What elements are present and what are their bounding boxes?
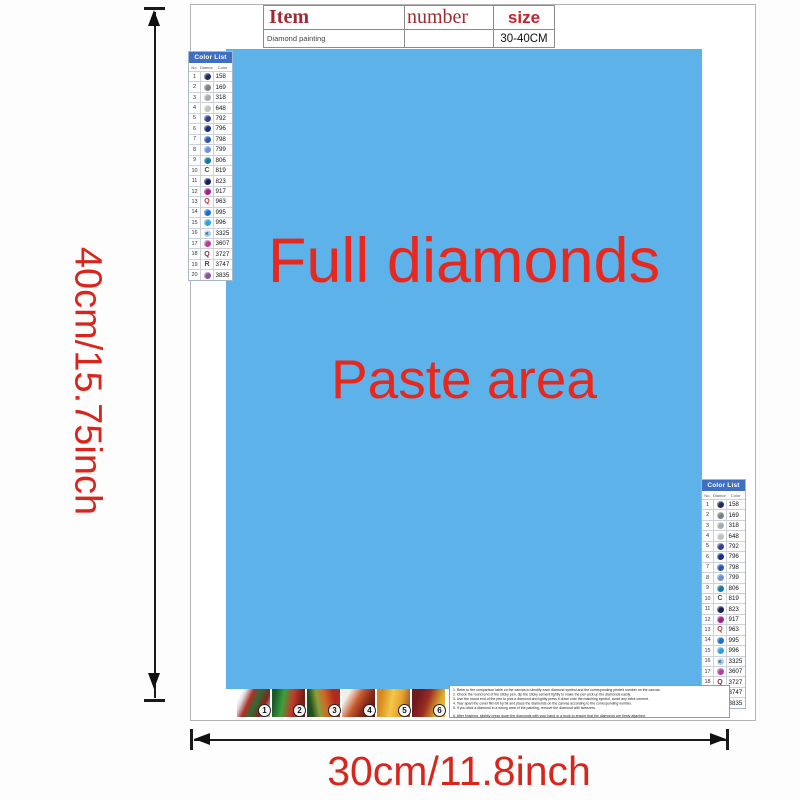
color-list-left: Color List No. Diamond Color 11582169331… xyxy=(188,51,233,281)
color-list-row: 6796 xyxy=(702,551,745,561)
item-value: Diamond painting xyxy=(264,30,405,48)
step-thumbnail: 1 xyxy=(237,689,270,717)
color-list-row: 18Q3727 xyxy=(189,248,232,258)
color-row-number: 15 xyxy=(702,648,713,654)
color-row-number: 16 xyxy=(189,230,200,236)
color-code: 158 xyxy=(213,72,232,81)
color-row-number: 4 xyxy=(189,105,200,111)
color-code: 169 xyxy=(726,510,745,519)
color-symbol xyxy=(713,646,726,655)
color-dot-icon xyxy=(717,501,724,508)
color-list-row: 14995 xyxy=(702,635,745,645)
color-list-row: 7798 xyxy=(702,562,745,572)
color-code: 792 xyxy=(213,114,232,123)
color-dot-icon xyxy=(717,533,724,540)
color-code: 3835 xyxy=(213,270,232,279)
color-symbol xyxy=(713,573,726,582)
color-list-row: 173607 xyxy=(702,666,745,676)
color-row-number: 16 xyxy=(702,658,713,664)
arrow-right-icon xyxy=(710,733,726,745)
color-code: 917 xyxy=(213,187,232,196)
color-letter-symbol: Q xyxy=(204,198,209,205)
color-row-number: 5 xyxy=(189,115,200,121)
color-list-row: 5792 xyxy=(702,541,745,551)
color-code: 799 xyxy=(213,145,232,154)
color-code: 819 xyxy=(213,166,232,175)
color-row-number: 1 xyxy=(189,74,200,80)
color-row-number: 9 xyxy=(189,157,200,163)
color-symbol: K xyxy=(713,657,726,666)
color-dot-icon xyxy=(717,522,724,529)
item-header: Item xyxy=(264,6,405,30)
color-list-row: 16K3325 xyxy=(189,228,232,238)
color-code: 318 xyxy=(213,93,232,102)
col-color: Color xyxy=(726,493,745,498)
color-row-number: 3 xyxy=(189,95,200,101)
step-thumbnails: 123456 xyxy=(237,689,445,717)
color-list-row: 10C819 xyxy=(189,165,232,175)
color-list-row: 12917 xyxy=(189,186,232,196)
color-dot-icon xyxy=(204,178,211,185)
color-dot-icon xyxy=(717,616,724,623)
color-list-row: 13Q963 xyxy=(702,624,745,634)
color-dot-icon xyxy=(204,105,211,112)
color-code: 3325 xyxy=(726,657,745,666)
color-symbol: Q xyxy=(200,197,213,206)
color-symbol xyxy=(713,531,726,540)
width-dimension-label: 30cm/11.8inch xyxy=(259,748,659,795)
color-row-number: 7 xyxy=(702,564,713,570)
color-code: 792 xyxy=(726,542,745,551)
height-arrow-line xyxy=(154,12,156,698)
color-list-row: 10C819 xyxy=(702,593,745,603)
item-info-table: Item number size Diamond painting 30-40C… xyxy=(263,5,555,48)
color-list-row: 11823 xyxy=(189,175,232,185)
color-list-row: 15996 xyxy=(189,217,232,227)
color-code: 648 xyxy=(213,103,232,112)
color-list-row: 6796 xyxy=(189,123,232,133)
color-code: 796 xyxy=(213,124,232,133)
color-dot-icon xyxy=(204,219,211,226)
color-dot-icon xyxy=(717,647,724,654)
color-dot-icon xyxy=(204,94,211,101)
color-symbol: C xyxy=(200,166,213,175)
color-letter-symbol: Q xyxy=(204,251,209,258)
color-dot-icon xyxy=(717,574,724,581)
color-list-row: 4648 xyxy=(702,530,745,540)
color-list-title: Color List xyxy=(189,52,232,63)
color-symbol xyxy=(713,615,726,624)
arrow-down-icon xyxy=(148,673,160,689)
color-symbol xyxy=(200,218,213,227)
color-code: 996 xyxy=(726,646,745,655)
size-value: 30-40CM xyxy=(494,30,555,48)
step-number-badge: 1 xyxy=(258,704,271,717)
color-symbol xyxy=(200,176,213,185)
col-no: No. xyxy=(702,493,713,498)
color-symbol xyxy=(200,208,213,217)
color-row-number: 13 xyxy=(702,627,713,633)
color-symbol xyxy=(713,510,726,519)
color-list-row: 203835 xyxy=(189,269,232,279)
step-thumbnail: 4 xyxy=(342,689,375,717)
color-code: 158 xyxy=(726,500,745,509)
color-symbol xyxy=(200,145,213,154)
color-code: 799 xyxy=(726,573,745,582)
color-list-row: 1158 xyxy=(702,499,745,509)
step-thumbnail: 6 xyxy=(412,689,445,717)
instructions-text: 1. Refer to the comparison table on the … xyxy=(453,688,726,718)
color-dot-icon xyxy=(717,543,724,550)
step-thumbnail: 2 xyxy=(272,689,305,717)
item-table-value-row: Diamond painting 30-40CM xyxy=(264,30,555,48)
color-row-number: 10 xyxy=(702,596,713,602)
color-symbol xyxy=(200,187,213,196)
color-letter-symbol: C xyxy=(717,595,722,602)
color-row-number: 4 xyxy=(702,533,713,539)
canvas-page: Item number size Diamond painting 30-40C… xyxy=(190,4,756,721)
color-row-number: 1 xyxy=(702,502,713,508)
color-row-number: 8 xyxy=(189,147,200,153)
color-dot-icon xyxy=(717,553,724,560)
step-number-badge: 3 xyxy=(328,704,341,717)
color-dot-icon xyxy=(204,125,211,132)
color-symbol xyxy=(713,542,726,551)
color-list-row: 3318 xyxy=(702,520,745,530)
color-symbol xyxy=(200,93,213,102)
color-row-number: 19 xyxy=(189,262,200,268)
color-code: 823 xyxy=(213,176,232,185)
color-list-row: 19R3747 xyxy=(189,259,232,269)
item-table-header-row: Item number size xyxy=(264,6,555,30)
color-list-row: 1158 xyxy=(189,71,232,81)
col-color: Color xyxy=(213,65,232,70)
color-list-row: 5792 xyxy=(189,113,232,123)
color-row-number: 7 xyxy=(189,136,200,142)
color-symbol xyxy=(713,563,726,572)
col-symbol: Diamond xyxy=(200,65,213,70)
color-list-row: 9806 xyxy=(702,583,745,593)
instruction-line: 5. If you stick a diamond in a wrong are… xyxy=(453,706,726,711)
color-dot-icon xyxy=(204,73,211,80)
color-row-number: 5 xyxy=(702,543,713,549)
step-thumbnail: 5 xyxy=(377,689,410,717)
color-code: 3727 xyxy=(213,249,232,258)
color-list-row: 11823 xyxy=(702,603,745,613)
color-code: 3607 xyxy=(726,667,745,676)
color-symbol xyxy=(200,135,213,144)
step-thumbnail: 3 xyxy=(307,689,340,717)
color-dot-icon xyxy=(204,84,211,91)
color-symbol xyxy=(713,667,726,676)
color-code: 3325 xyxy=(213,229,232,238)
color-code: 798 xyxy=(213,135,232,144)
arrow-left-icon xyxy=(194,733,210,745)
color-dot-icon xyxy=(717,637,724,644)
color-row-number: 3 xyxy=(702,523,713,529)
color-code: 796 xyxy=(726,552,745,561)
color-symbol xyxy=(200,72,213,81)
number-header: number xyxy=(405,6,494,30)
instruction-line: 6. After finishing, slightly press down … xyxy=(453,714,726,718)
step-number-badge: 5 xyxy=(398,704,411,717)
color-code: 648 xyxy=(726,531,745,540)
color-dot-icon xyxy=(204,209,211,216)
color-dot-icon xyxy=(717,585,724,592)
color-list-row: 2169 xyxy=(702,509,745,519)
color-code: 806 xyxy=(726,584,745,593)
color-list-row: 2169 xyxy=(189,81,232,91)
color-dot-icon xyxy=(204,115,211,122)
color-symbol xyxy=(200,124,213,133)
color-dot-icon xyxy=(204,272,211,279)
color-symbol xyxy=(200,114,213,123)
color-list-right: Color List No. Diamond Color 11582169331… xyxy=(701,479,746,709)
color-list-rows: 11582169331846485792679677988799980610C8… xyxy=(702,499,745,708)
color-list-row: 15996 xyxy=(702,645,745,655)
color-list-title: Color List xyxy=(702,480,745,491)
color-symbol: K xyxy=(200,229,213,238)
paste-area-title-line2: Paste area xyxy=(226,347,702,411)
color-code: 318 xyxy=(726,521,745,530)
color-dot-icon xyxy=(204,188,211,195)
color-row-number: 6 xyxy=(702,554,713,560)
color-dot-icon: K xyxy=(717,658,724,665)
color-code: 995 xyxy=(726,636,745,645)
color-code: 917 xyxy=(726,615,745,624)
color-symbol xyxy=(713,636,726,645)
color-list-columns: No. Diamond Color xyxy=(189,63,232,71)
color-code: 996 xyxy=(213,218,232,227)
color-code: 819 xyxy=(726,594,745,603)
color-dot-icon xyxy=(717,512,724,519)
step-number-badge: 6 xyxy=(433,704,446,717)
color-row-number: 17 xyxy=(702,669,713,675)
instructions-box: 1. Refer to the comparison table on the … xyxy=(449,685,730,718)
color-letter-symbol: Q xyxy=(717,626,722,633)
color-code: 3747 xyxy=(213,260,232,269)
size-header: size xyxy=(494,6,555,30)
color-symbol xyxy=(200,239,213,248)
width-arrow-cap-left xyxy=(190,729,193,750)
color-code: 963 xyxy=(726,625,745,634)
color-symbol: R xyxy=(200,260,213,269)
color-row-number: 18 xyxy=(189,251,200,257)
color-row-number: 2 xyxy=(189,84,200,90)
color-dot-icon xyxy=(717,668,724,675)
product-size-infographic: 40cm/15.75inch 30cm/11.8inch Item number… xyxy=(0,0,800,800)
color-code: 963 xyxy=(213,197,232,206)
color-symbol xyxy=(713,500,726,509)
color-list-row: 13Q963 xyxy=(189,196,232,206)
color-symbol xyxy=(713,604,726,613)
color-list-row: 3318 xyxy=(189,92,232,102)
color-dot-icon: K xyxy=(204,230,211,237)
color-symbol xyxy=(713,552,726,561)
color-letter-symbol: C xyxy=(204,167,209,174)
color-code: 823 xyxy=(726,604,745,613)
color-list-row: 7798 xyxy=(189,134,232,144)
color-row-number: 11 xyxy=(702,606,713,612)
color-row-number: 14 xyxy=(702,637,713,643)
paste-area: Full diamonds Paste area xyxy=(226,49,702,689)
color-dot-icon xyxy=(717,564,724,571)
color-code: 3607 xyxy=(213,239,232,248)
color-list-row: 16K3325 xyxy=(702,656,745,666)
color-list-row: 8799 xyxy=(702,572,745,582)
step-number-badge: 2 xyxy=(293,704,306,717)
color-symbol xyxy=(200,270,213,279)
color-dot-icon xyxy=(204,157,211,164)
color-list-row: 173607 xyxy=(189,238,232,248)
color-row-number: 15 xyxy=(189,220,200,226)
color-row-number: 2 xyxy=(702,512,713,518)
col-no: No. xyxy=(189,65,200,70)
number-value xyxy=(405,30,494,48)
color-row-number: 12 xyxy=(702,617,713,623)
color-symbol: C xyxy=(713,594,726,603)
color-list-row: 14995 xyxy=(189,207,232,217)
color-list-row: 12917 xyxy=(702,614,745,624)
color-symbol xyxy=(713,521,726,530)
color-symbol: Q xyxy=(713,625,726,634)
color-code: 995 xyxy=(213,208,232,217)
width-arrow-line xyxy=(194,739,726,741)
color-list-rows: 11582169331846485792679677988799980610C8… xyxy=(189,71,232,280)
color-symbol: Q xyxy=(200,249,213,258)
color-symbol xyxy=(200,156,213,165)
arrow-up-icon xyxy=(148,10,160,26)
col-symbol: Diamond xyxy=(713,493,726,498)
color-list-row: 8799 xyxy=(189,144,232,154)
color-code: 806 xyxy=(213,156,232,165)
color-row-number: 12 xyxy=(189,189,200,195)
color-dot-icon xyxy=(204,136,211,143)
color-code: 169 xyxy=(213,82,232,91)
color-row-number: 13 xyxy=(189,199,200,205)
paste-area-title-line1: Full diamonds xyxy=(226,225,702,297)
color-list-row: 9806 xyxy=(189,155,232,165)
height-arrow-cap-bottom xyxy=(144,699,165,702)
color-row-number: 20 xyxy=(189,272,200,278)
color-dot-icon xyxy=(204,240,211,247)
step-number-badge: 4 xyxy=(363,704,376,717)
color-row-number: 9 xyxy=(702,585,713,591)
color-code: 798 xyxy=(726,563,745,572)
color-symbol xyxy=(200,103,213,112)
height-dimension-label: 40cm/15.75inch xyxy=(63,224,109,539)
color-dot-icon xyxy=(717,606,724,613)
width-arrow-cap-right xyxy=(726,729,729,750)
color-row-number: 10 xyxy=(189,168,200,174)
color-row-number: 8 xyxy=(702,575,713,581)
color-row-number: 11 xyxy=(189,178,200,184)
color-symbol xyxy=(713,584,726,593)
color-list-row: 4648 xyxy=(189,102,232,112)
color-row-number: 14 xyxy=(189,209,200,215)
color-dot-icon xyxy=(204,146,211,153)
color-row-number: 17 xyxy=(189,241,200,247)
color-list-columns: No. Diamond Color xyxy=(702,491,745,499)
color-symbol xyxy=(200,82,213,91)
color-row-number: 6 xyxy=(189,126,200,132)
color-letter-symbol: R xyxy=(204,261,209,268)
